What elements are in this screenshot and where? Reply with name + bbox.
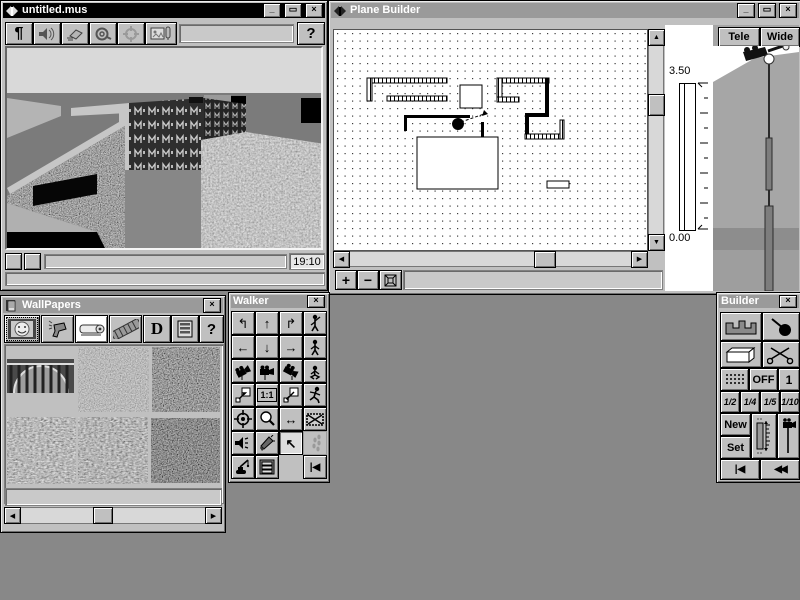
person-icon [307,338,323,356]
speaker-icon [38,27,56,41]
plane-title: Plane Builder [350,3,734,18]
fraction-fifth-label: 1/5 [764,397,777,407]
picture-pin-icon [150,26,172,41]
scroll-right-button[interactable]: ▶ [205,507,222,524]
library-button[interactable] [255,455,279,479]
wallpapers-titlebar[interactable]: WallPapers × [3,298,223,313]
plan-wall-hatched[interactable] [387,96,447,101]
sound-button[interactable] [33,22,61,45]
letter-d-tool-button[interactable]: D [143,315,171,343]
left-arrow-icon: ← [237,341,250,354]
pan-button[interactable]: ↔ [279,407,303,431]
height-range-button[interactable] [751,413,777,459]
height-scale-icon [755,417,773,455]
pen-tool-button[interactable] [762,312,800,341]
grid-snap-button[interactable] [720,368,749,391]
plan-svg [334,30,647,250]
swatch-texture-4[interactable] [7,417,76,484]
select-cursor-button[interactable]: ↖ [279,431,303,455]
camera-pole-graphic[interactable] [713,46,799,291]
swatch-texture-2[interactable] [78,347,149,412]
swatch-arch[interactable] [7,359,74,393]
turn-right-icon: ↱ [286,317,297,330]
new-label: New [724,419,747,431]
builder-first-button[interactable]: |◀ [720,459,760,480]
person-run-icon [306,386,324,404]
tele-button[interactable]: Tele [718,27,760,47]
spray-gun-icon [47,319,69,339]
plan-wall-hatched[interactable] [367,78,447,83]
fit-view-icon [384,274,397,287]
plan-wall-outline[interactable] [417,137,498,189]
run-button[interactable] [303,383,327,407]
camera-icon [258,363,276,380]
right-arrow-icon: → [285,341,298,354]
walker-grid: ↰ ↑ ↱ ← ↓ → [231,311,327,479]
plane-statusbar [403,270,663,290]
3d-viewport[interactable] [5,46,323,250]
plan-wall-solid[interactable] [404,115,407,131]
right-arrow-icon: ▶ [211,512,216,520]
speaker-waves-icon [234,435,252,451]
plan-wall-hatched[interactable] [497,97,519,102]
person-crouch-icon [307,362,323,380]
viewer-maximize-button[interactable]: ▭ [284,3,302,18]
wide-label: Wide [767,31,793,43]
wallpaper-roll-icon [79,320,105,338]
fit-view-button[interactable] [379,270,402,290]
zoom-in-button[interactable]: + [335,270,357,290]
fraction-quarter-label: 1/4 [744,397,757,407]
viewer-help-button[interactable]: ? [297,22,325,45]
wide-button[interactable]: Wide [760,27,800,47]
camera-pole-icon [781,417,797,455]
move-back-button[interactable]: ↓ [255,335,279,359]
swatch-texture-3[interactable] [152,347,220,412]
plan-wall-outline[interactable] [547,181,569,188]
dark-sliver [189,97,203,103]
dot-grid-icon [725,373,744,386]
camera-tilt-left-icon [234,363,252,380]
ribbon-icon [113,319,139,339]
walker-titlebar[interactable]: Walker × [231,295,327,308]
back-arrow-icon: ↓ [264,341,271,354]
cursor-icon: ↖ [286,437,297,450]
plane-maximize-button[interactable]: ▭ [758,3,776,18]
3d-scene [7,48,321,248]
move-forward-button[interactable]: ↑ [255,311,279,335]
status-button-1[interactable] [5,253,22,270]
scroll-left-button[interactable]: ◀ [333,251,350,268]
tele-label: Tele [728,31,749,43]
plan-wall-solid[interactable] [545,78,549,117]
pan-icon: ↔ [285,413,298,426]
grow-button[interactable] [231,383,255,407]
scissors-icon [767,345,795,365]
center-block [119,170,201,248]
look-left-button[interactable] [231,359,255,383]
look-right-button[interactable] [279,359,303,383]
turn-right-button[interactable]: ↱ [279,311,303,335]
wallpapers-hscroll-thumb[interactable] [93,507,113,524]
eraser-button[interactable] [61,22,89,45]
minus-icon: − [364,272,372,288]
shrink-icon [282,386,300,404]
plane-builder-window: Plane Builder _ ▭ × [328,0,800,295]
down-arrow-icon: ▼ [653,239,660,246]
plan-wall-hatched[interactable] [367,78,372,101]
turn-left-icon: ↰ [238,317,249,330]
viewer-minimize-button[interactable]: _ [263,3,281,18]
actual-size-button[interactable]: 1:1 [255,383,279,407]
plane-close-button[interactable]: × [779,3,797,18]
wallpaper-name-field[interactable] [5,488,222,506]
builder-title: Builder [721,295,776,308]
look-ahead-button[interactable] [255,359,279,383]
wall-profile-icon [725,318,757,336]
app-icon [333,5,347,17]
builder-titlebar[interactable]: Builder × [719,295,799,308]
horn-icon [258,435,276,452]
box-tool-button[interactable] [720,341,762,368]
plan-canvas[interactable] [333,29,648,251]
wallpapers-title: WallPapers [22,298,200,313]
viewer-titlebar[interactable]: untitled.mus _ ▭ × [3,3,325,18]
builder-close-button[interactable]: × [779,295,797,308]
roll-tool-button[interactable] [75,315,108,343]
camera-position-marker[interactable] [452,118,464,130]
viewer-close-button[interactable]: × [305,3,323,18]
portrait-icon [8,319,36,339]
plane-minimize-button[interactable]: _ [737,3,755,18]
wallpapers-close-button[interactable]: × [203,298,221,313]
step-right-button[interactable]: → [279,335,303,359]
snap-fifth-button[interactable]: 1/5 [760,391,780,413]
wallpapers-help-button[interactable]: ? [199,315,224,343]
shadow-wedge [7,232,105,248]
sound-toggle-button[interactable] [231,431,255,455]
builder-window: Builder × OFF 1 1/2 1/4 1/5 1/10 New [716,292,800,483]
letter-d-label: D [151,319,163,339]
scale-max-label: 3.50 [669,65,690,77]
build-mode-button[interactable] [231,455,255,479]
app-icon [5,5,19,17]
walker-blank-cell [279,455,303,479]
viewer-toolbar-field [179,24,294,43]
wallpapers-window: WallPapers × D ? [0,295,226,533]
plan-wall-solid[interactable] [481,122,484,138]
stand-button[interactable] [303,335,327,359]
vscroll-thumb[interactable] [648,94,665,116]
bar-inner-line [684,84,685,230]
crossed-frame-icon [306,412,324,427]
scroll-down-button[interactable]: ▼ [648,234,665,251]
scroll-up-button[interactable]: ▲ [648,29,665,46]
plan-vscrollbar[interactable]: ▲ ▼ [648,29,664,251]
scroll-left-button[interactable]: ◀ [4,507,21,524]
progress-field [44,254,287,269]
right-stone-wall-noise [201,132,321,248]
camera-elevation-panel: Tele Wide [713,25,799,291]
rewind-icon: ◀◀ [774,464,785,475]
off-label: OFF [753,374,775,386]
spiral-icon [94,27,112,41]
portrait-tool-button[interactable] [4,315,40,343]
step-left-button[interactable]: ← [231,335,255,359]
announce-button[interactable] [255,431,279,455]
snap-half-button[interactable]: 1/2 [720,391,740,413]
help-label: ? [306,25,315,42]
picture-button[interactable] [145,22,177,45]
spiral-button[interactable] [89,22,117,45]
person-tall-icon [307,314,323,332]
frame-off-button[interactable] [303,407,327,431]
fraction-tenth-label: 1/10 [781,397,799,407]
target-icon [123,26,139,42]
snap-off-button[interactable]: OFF [749,368,778,391]
stack-icon [177,320,193,338]
drawers-icon [259,459,275,475]
time-value: 19:10 [293,256,321,268]
new-button[interactable]: New [720,413,751,436]
footsteps-button[interactable] [303,431,327,455]
one-label: 1 [786,373,793,387]
annotation-button[interactable]: ¶ [5,22,33,45]
snap-one-button[interactable]: 1 [778,368,800,391]
viewer-statusbar [5,272,325,286]
magnifier-icon [258,410,276,428]
viewer-window: untitled.mus _ ▭ × ¶ ? [0,0,328,291]
builder-rewind-button[interactable]: ◀◀ [760,459,800,480]
target-button[interactable] [117,22,145,45]
set-label: Set [727,442,744,454]
spray-tool-button[interactable] [41,315,74,343]
wallpaper-book-icon [5,299,19,312]
wall-profile-button[interactable] [720,312,762,341]
help-label: ? [207,321,216,338]
ribbon-tool-button[interactable] [109,315,142,343]
dark-doorway-right [301,98,321,123]
plus-icon: + [342,272,350,288]
scale-ruler [696,81,712,231]
plan-wall-hatched[interactable] [497,78,549,83]
crouch-button[interactable] [303,359,327,383]
right-arrow-icon: ▶ [637,256,642,263]
height-scale-panel: 3.50 0.00 [665,25,713,291]
turn-left-button[interactable]: ↰ [231,311,255,335]
snap-tenth-button[interactable]: 1/10 [780,391,800,413]
hscroll-thumb[interactable] [534,251,556,268]
forward-arrow-icon: ↑ [264,317,271,330]
plan-wall-hatched[interactable] [560,120,564,139]
snap-quarter-button[interactable]: 1/4 [740,391,760,413]
camera-height-button[interactable] [777,413,800,459]
plan-wall-outline[interactable] [460,85,482,108]
wallpapers-hscrollbar[interactable]: ◀ ▶ [4,507,222,524]
time-display: 19:10 [289,253,325,270]
fraction-half-label: 1/2 [724,397,737,407]
plan-hscrollbar[interactable]: ◀ ▶ [333,251,648,267]
enlarge-icon [234,386,252,404]
go-to-start-button[interactable]: |◀ [303,455,327,479]
stand-tall-button[interactable] [303,311,327,335]
plan-wall-solid[interactable] [404,115,470,118]
desktop: untitled.mus _ ▭ × ¶ ? [0,0,800,600]
walker-title: Walker [233,295,304,308]
swatch-texture-5[interactable] [78,417,148,484]
camera-tilt-right-icon [282,363,300,380]
sky [7,48,321,93]
walker-window: Walker × ↰ ↑ ↱ ← ↓ → [228,292,330,483]
magnify-button[interactable] [255,407,279,431]
one-to-one-label: 1:1 [257,388,276,402]
left-arrow-icon: ◀ [10,512,15,520]
scale-min-label: 0.00 [669,232,690,244]
height-range-bar[interactable] [679,83,696,231]
eraser-icon [66,27,84,41]
walker-close-button[interactable]: × [307,295,325,308]
viewer-title: untitled.mus [22,3,260,18]
status-button-2[interactable] [24,253,41,270]
center-target-button[interactable] [231,407,255,431]
crane-icon [234,459,252,476]
pilcrow-icon: ¶ [15,25,24,43]
plane-titlebar[interactable]: Plane Builder _ ▭ × [331,3,799,18]
zoom-out-button[interactable]: − [357,270,379,290]
up-arrow-icon: ▲ [653,34,660,41]
first-icon: |◀ [735,464,746,475]
list-tool-button[interactable] [171,315,199,343]
plan-wall-hatched[interactable] [525,134,564,139]
pen-ball-icon [768,317,794,337]
crosshair-icon [234,410,252,428]
left-arrow-icon: ◀ [339,256,344,263]
swatch-texture-6[interactable] [151,418,220,483]
scroll-right-button[interactable]: ▶ [631,251,648,268]
first-icon: |◀ [310,462,321,473]
cut-tool-button[interactable] [762,341,800,368]
shrink-button[interactable] [279,383,303,407]
footsteps-icon [307,434,323,452]
box-3d-icon [725,346,757,364]
set-button[interactable]: Set [720,436,751,459]
